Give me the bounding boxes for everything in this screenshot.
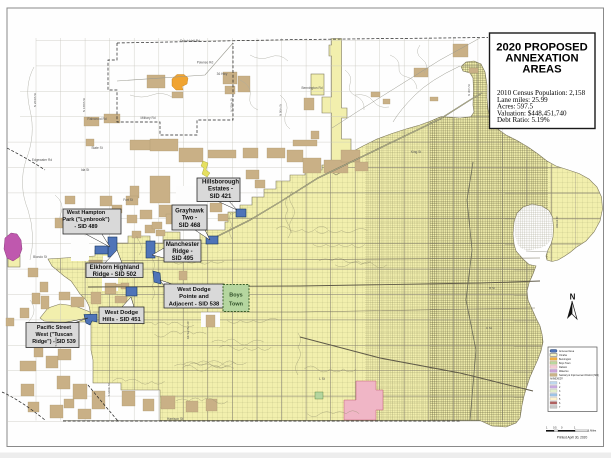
svg-text:SID 468: SID 468 (179, 223, 201, 229)
svg-text:Manchester: Manchester (166, 242, 200, 248)
svg-text:Ralston: Ralston (559, 366, 568, 369)
svg-text:1 Miles: 1 Miles (588, 429, 597, 433)
svg-text:West Hampton: West Hampton (67, 210, 106, 216)
svg-text:King St: King St (411, 150, 421, 154)
svg-text:Ida St: Ida St (81, 168, 89, 172)
svg-text:Printed April 30, 2020: Printed April 30, 2020 (557, 436, 588, 440)
svg-text:- SID 489: - SID 489 (74, 224, 97, 230)
svg-text:Omaha: Omaha (559, 354, 568, 357)
svg-text:Abbott Dr: Abbott Dr (555, 216, 559, 228)
svg-text:Pacific Street: Pacific Street (37, 325, 71, 331)
svg-text:West Dodge: West Dodge (177, 287, 211, 293)
svg-text:Boys: Boys (229, 293, 242, 299)
svg-text:State St: State St (91, 146, 102, 150)
svg-text:Hills - SID 451: Hills - SID 451 (102, 317, 141, 323)
svg-text:Ridge -: Ridge - (172, 249, 192, 255)
svg-text:SID 495: SID 495 (172, 256, 194, 262)
svg-text:Waterloo: Waterloo (559, 370, 569, 373)
svg-text:N 90th St: N 90th St (279, 104, 283, 116)
svg-text:West Dodge: West Dodge (105, 310, 139, 316)
svg-text:Town: Town (229, 302, 244, 308)
svg-text:N: N (570, 293, 576, 302)
svg-text:Blondo St: Blondo St (33, 255, 47, 259)
svg-text:N 120th St: N 120th St (230, 98, 234, 111)
svg-text:Dutch Hall Rd: Dutch Hall Rd (180, 39, 200, 43)
svg-text:Estates -: Estates - (208, 187, 233, 193)
svg-text:ANNEXED?: ANNEXED? (550, 378, 564, 381)
svg-text:L St: L St (319, 377, 325, 381)
svg-text:Boys Town: Boys Town (559, 362, 571, 365)
svg-text:Harrison St: Harrison St (167, 417, 183, 421)
svg-text:Rainwood Rd: Rainwood Rd (87, 117, 106, 121)
svg-text:S 160th St: S 160th St (107, 383, 111, 396)
svg-text:Elkhorn Highland: Elkhorn Highland (90, 265, 140, 271)
svg-text:Park ("Lynbrook"): Park ("Lynbrook") (62, 217, 109, 223)
svg-text:Military Rd: Military Rd (140, 116, 155, 120)
svg-text:Fort St: Fort St (123, 198, 133, 202)
svg-text:Ridge - SID 502: Ridge - SID 502 (93, 272, 137, 278)
svg-text:Two -: Two - (182, 216, 197, 222)
svg-text:Annexed Area: Annexed Area (559, 350, 575, 353)
svg-text:S 168th St: S 168th St (54, 333, 58, 346)
svg-text:Pawnee Rd: Pawnee Rd (197, 61, 214, 65)
svg-text:Debt Ratio: 5.19%: Debt Ratio: 5.19% (497, 116, 550, 124)
svg-text:Pointe and: Pointe and (179, 294, 209, 300)
svg-text:Sanitary & Improvement Distric: Sanitary & Improvement District (SID) (559, 374, 599, 377)
svg-text:F St: F St (486, 326, 492, 330)
svg-text:36 Hwy: 36 Hwy (217, 72, 228, 76)
svg-text:Edgewater Rd: Edgewater Rd (32, 158, 52, 162)
svg-text:Bennington Rd: Bennington Rd (301, 86, 322, 90)
svg-text:N 30th St: N 30th St (467, 84, 471, 96)
svg-text:Adjacent - SID 538: Adjacent - SID 538 (169, 301, 220, 307)
svg-text:N 204th St: N 204th St (33, 93, 37, 107)
svg-text:AK Sar Ben Dr: AK Sar Ben Dr (186, 321, 190, 339)
svg-text:B St: B St (489, 286, 495, 290)
svg-text:0.5: 0.5 (553, 426, 557, 430)
svg-text:Bennington: Bennington (559, 358, 572, 361)
svg-text:N 168th St: N 168th St (82, 98, 86, 112)
svg-text:AREAS: AREAS (522, 64, 562, 76)
svg-text:Hillsborough: Hillsborough (202, 179, 239, 185)
svg-text:SID 421: SID 421 (210, 194, 232, 200)
svg-text:Grayhawk: Grayhawk (175, 208, 204, 214)
